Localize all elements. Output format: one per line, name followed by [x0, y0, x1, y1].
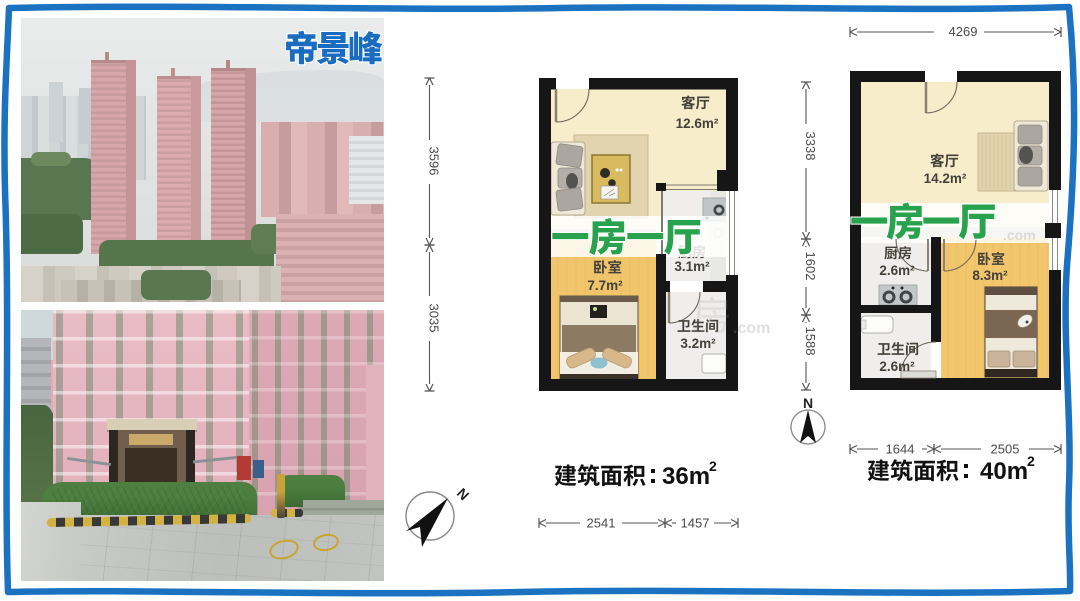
- svg-text:3596: 3596: [427, 147, 442, 176]
- svg-text:36m: 36m: [662, 463, 710, 490]
- svg-text:1457: 1457: [681, 516, 710, 531]
- svg-text:7.7m²: 7.7m²: [587, 278, 623, 293]
- svg-text:3338: 3338: [803, 132, 818, 161]
- svg-text:2541: 2541: [587, 516, 616, 531]
- svg-text:1602: 1602: [803, 252, 818, 281]
- svg-text:40m: 40m: [980, 458, 1028, 485]
- svg-text:2.6m²: 2.6m²: [879, 263, 915, 278]
- svg-text:2: 2: [709, 458, 717, 474]
- svg-text:3.2m²: 3.2m²: [680, 336, 716, 351]
- svg-text:12.6m²: 12.6m²: [676, 116, 719, 131]
- svg-text:2: 2: [1027, 453, 1035, 469]
- svg-text:N: N: [454, 485, 472, 503]
- svg-text:.com: .com: [733, 320, 770, 337]
- svg-text:2505: 2505: [991, 442, 1020, 457]
- svg-text:2.6m²: 2.6m²: [879, 359, 915, 374]
- svg-text:3.1m²: 3.1m²: [674, 259, 710, 274]
- svg-text:8.3m²: 8.3m²: [972, 268, 1008, 283]
- svg-text:1644: 1644: [886, 442, 915, 457]
- svg-text:N: N: [803, 395, 813, 411]
- svg-text:1588: 1588: [803, 327, 818, 356]
- svg-text:4269: 4269: [949, 24, 978, 39]
- svg-text:14.2m²: 14.2m²: [924, 171, 967, 186]
- svg-text:.com: .com: [1003, 227, 1036, 243]
- svg-text:3035: 3035: [427, 304, 442, 333]
